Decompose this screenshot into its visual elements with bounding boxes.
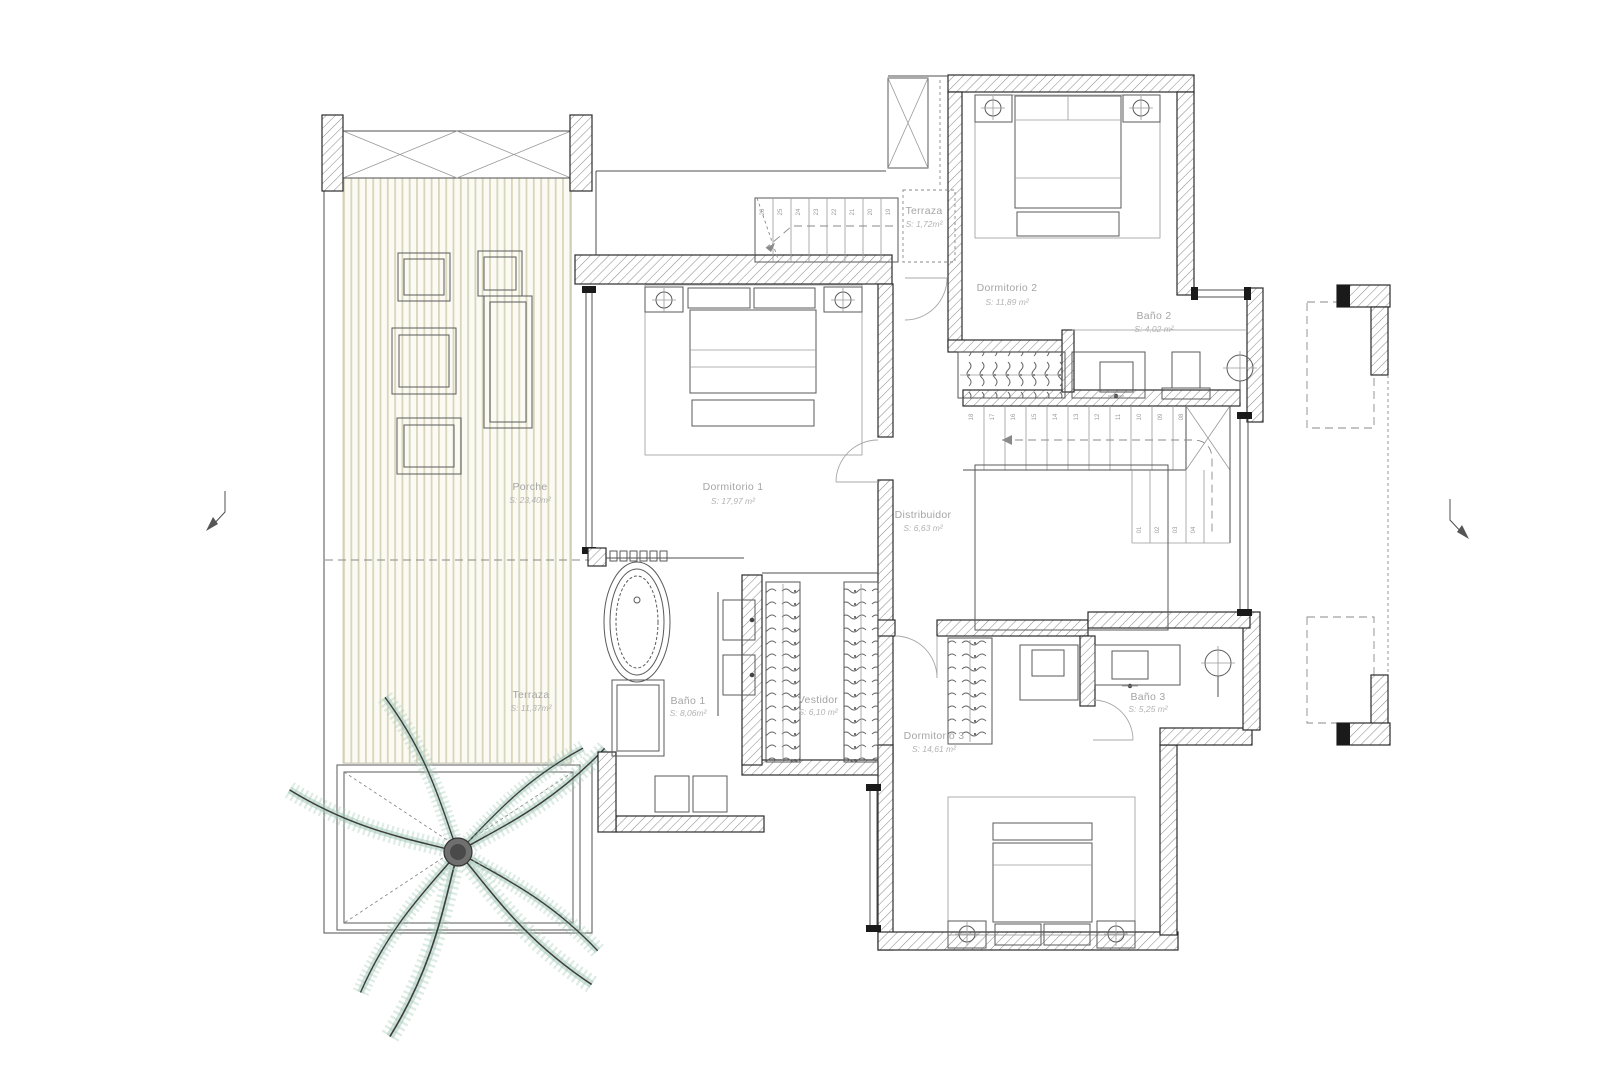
walk-in-closet (766, 582, 878, 762)
floor-plan-drawing: 2625242322212019 (0, 0, 1600, 1085)
area-porche: S: 23,40m² (509, 495, 552, 505)
stair-step-number: 19 (886, 208, 892, 215)
interior-stair-upper: 1817161514131211100908 (963, 406, 1230, 543)
stair-step-number: 16 (1011, 413, 1017, 420)
stair-step-number: 08 (1179, 413, 1185, 420)
label-bano-2: Baño 2 (1136, 310, 1171, 322)
area-bano-2: S: 4,02 m² (1134, 324, 1174, 334)
interior-stair-lower: 01020304 (1002, 435, 1230, 543)
balcony-lower-right (1307, 617, 1390, 745)
chimney-shaft (888, 78, 940, 188)
stair-step-number: 11 (1116, 413, 1122, 420)
label-dormitorio-3: Dormitorio 3 (904, 730, 965, 742)
windows (582, 286, 1252, 932)
section-marker-left (206, 491, 225, 531)
shower (612, 680, 664, 756)
closet-dormitorio-3 (948, 638, 992, 744)
desk-dormitorio-3 (1020, 645, 1078, 700)
stair-step-number: 15 (1032, 413, 1038, 420)
wardrobe-dormitorio-2 (958, 352, 1065, 398)
stair-step-number: 21 (850, 208, 856, 215)
stair-direction-arrow (1002, 435, 1012, 445)
stair-step-number: 25 (778, 208, 784, 215)
stair-step-number: 13 (1074, 413, 1080, 420)
toilet-2 (1172, 352, 1200, 388)
porch-pillar-right (570, 115, 592, 191)
stair-step-number: 10 (1137, 413, 1143, 420)
wood-decking (343, 178, 571, 763)
stair-step-number: 01 (1137, 526, 1143, 533)
label-porche: Porche (512, 481, 547, 493)
floor-plan-page: 2625242322212019 (0, 0, 1600, 1085)
area-dormitorio-2: S: 11,89 m² (985, 297, 1029, 307)
label-terraza-sup: Terraza (905, 205, 942, 217)
bed-dormitorio-1 (645, 285, 862, 455)
area-bano-3: S: 5,25 m² (1128, 704, 1168, 714)
stairwell-void (975, 465, 1168, 630)
label-dormitorio-2: Dormitorio 2 (977, 282, 1038, 294)
bathtub (604, 562, 670, 682)
label-bano-1: Baño 1 (670, 695, 705, 707)
label-dormitorio-1: Dormitorio 1 (703, 481, 764, 493)
label-bano-3: Baño 3 (1130, 691, 1165, 703)
area-bano-1: S: 8,06m² (670, 708, 708, 718)
stair-step-number: 03 (1173, 526, 1179, 533)
label-vestidor: Vestidor (798, 694, 839, 706)
stair-step-number: 17 (990, 413, 996, 420)
area-vestidor: S: 6,10 m² (798, 707, 838, 717)
bed-dormitorio-2 (975, 95, 1160, 238)
stair-step-number: 14 (1053, 413, 1059, 420)
porch-pillar-left (322, 115, 343, 191)
sink-bath-2 (1100, 362, 1133, 392)
stair-step-number: 20 (868, 208, 874, 215)
porch-terrace-block (285, 115, 620, 1041)
bed-dormitorio-3 (948, 797, 1135, 948)
label-terraza-izq: Terraza (512, 689, 549, 701)
bathroom-3 (1095, 645, 1235, 697)
area-terraza-izq: S: 11,37m² (511, 703, 553, 713)
stair-step-number: 09 (1158, 413, 1164, 420)
round-basin-3 (1201, 646, 1235, 680)
stair-step-number: 04 (1191, 526, 1197, 533)
area-terraza-sup: S: 1,72m² (906, 219, 944, 229)
exterior-stair: 2625242322212019 (596, 76, 948, 262)
label-distribuidor: Distribuidor (895, 509, 952, 521)
stair-step-number: 02 (1155, 526, 1161, 533)
stair-step-number: 18 (969, 413, 975, 420)
stair-step-number: 26 (760, 208, 766, 215)
stair-step-number: 24 (796, 208, 802, 215)
area-distribuidor: S: 6,63 m² (903, 523, 943, 533)
area-dormitorio-3: S: 14,61 m² (912, 744, 957, 754)
stair-step-number: 22 (832, 208, 838, 215)
area-dormitorio-1: S: 17,97 m² (711, 496, 756, 506)
stair-step-number: 23 (814, 208, 820, 215)
stair-step-number: 12 (1095, 413, 1101, 420)
section-marker-right (1450, 499, 1469, 539)
sink-bath-3 (1112, 651, 1148, 679)
pergola-beam (343, 131, 571, 178)
balcony-upper-right (1307, 285, 1390, 428)
